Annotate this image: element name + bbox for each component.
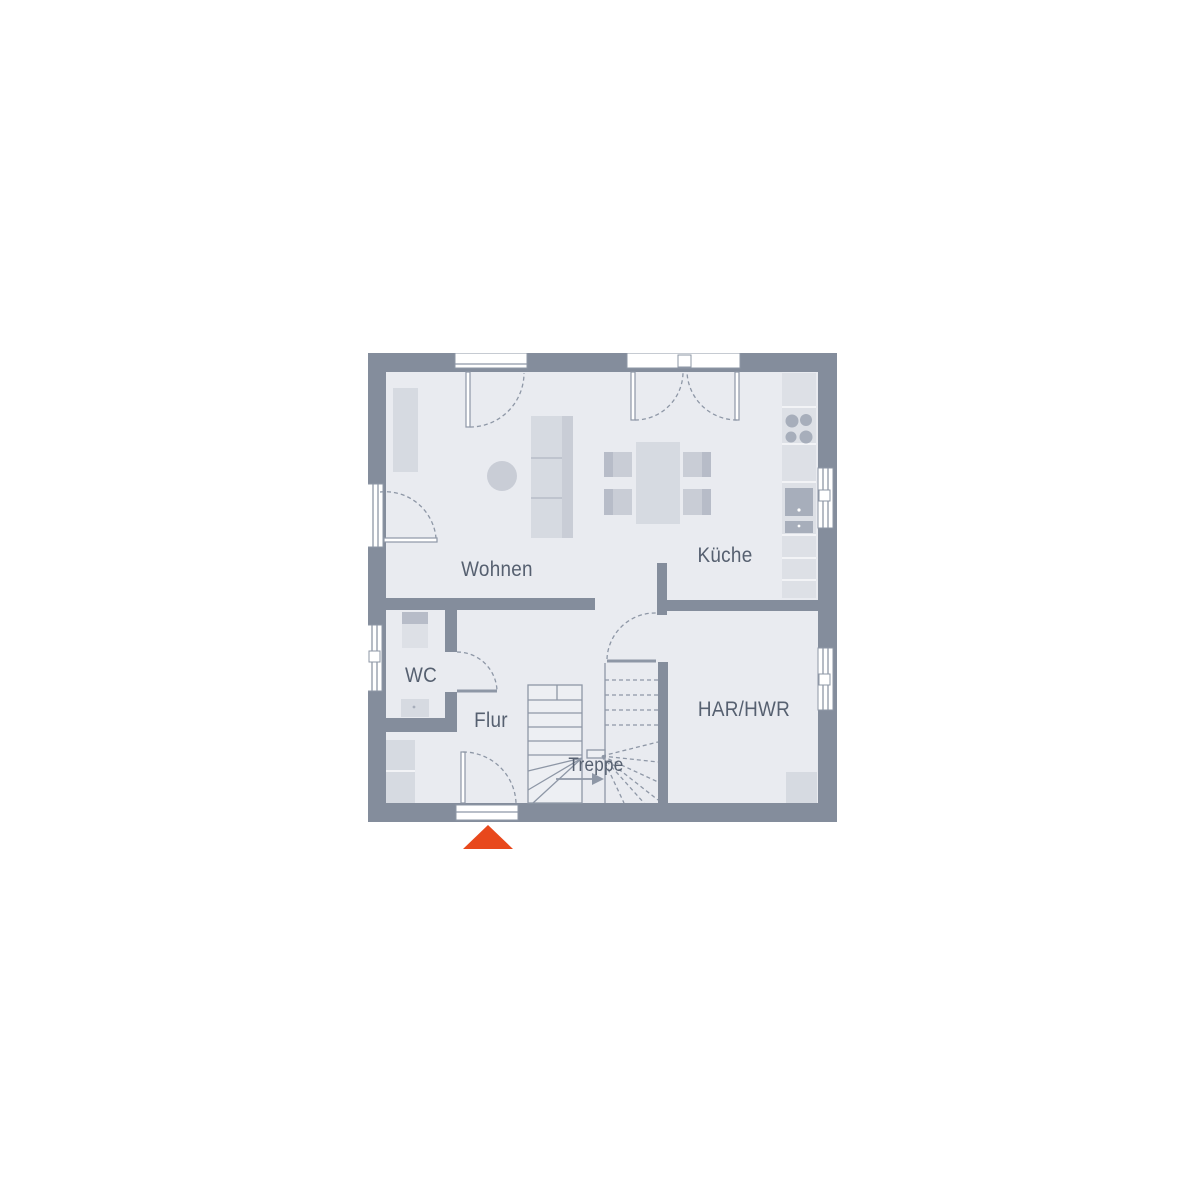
dining-table — [636, 442, 680, 524]
page-canvas: Wohnen Küche WC Flur Treppe HAR/HWR — [0, 0, 1200, 1200]
kitchen-counter — [782, 373, 816, 598]
wc-toilet — [401, 699, 429, 717]
utility-appliance — [786, 772, 817, 803]
sideboard — [393, 388, 418, 472]
wc-sink — [402, 612, 428, 624]
room-label-treppe: Treppe — [568, 755, 623, 777]
sofa-back — [562, 416, 573, 538]
coffee-table — [487, 461, 517, 491]
room-label-flur: Flur — [474, 709, 508, 733]
window-wc — [368, 625, 382, 691]
entrance-arrow-icon — [463, 825, 513, 849]
floor-plan-drawing — [368, 353, 838, 853]
window-utility — [818, 648, 833, 710]
floor-plan: Wohnen Küche WC Flur Treppe HAR/HWR — [368, 353, 838, 853]
sofa-seat — [531, 416, 562, 538]
room-label-wc: WC — [405, 664, 437, 688]
room-label-har-hwr: HAR/HWR — [698, 698, 790, 722]
wardrobe — [386, 740, 415, 803]
room-label-kueche: Küche — [698, 544, 753, 568]
oven — [785, 488, 813, 516]
room-label-wohnen: Wohnen — [461, 558, 533, 582]
window-kitchen — [818, 468, 833, 528]
